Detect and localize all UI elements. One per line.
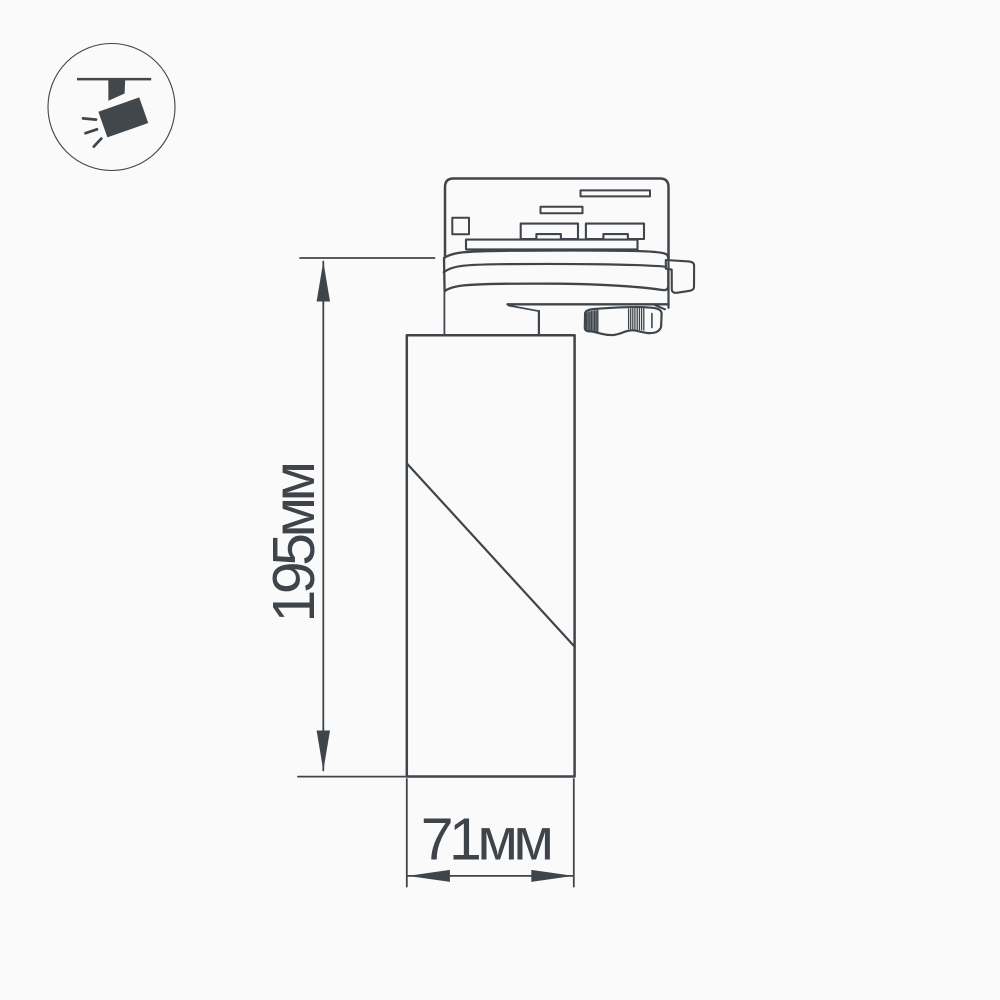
svg-text:195мм: 195мм bbox=[261, 464, 327, 622]
svg-text:71мм: 71мм bbox=[421, 807, 551, 873]
